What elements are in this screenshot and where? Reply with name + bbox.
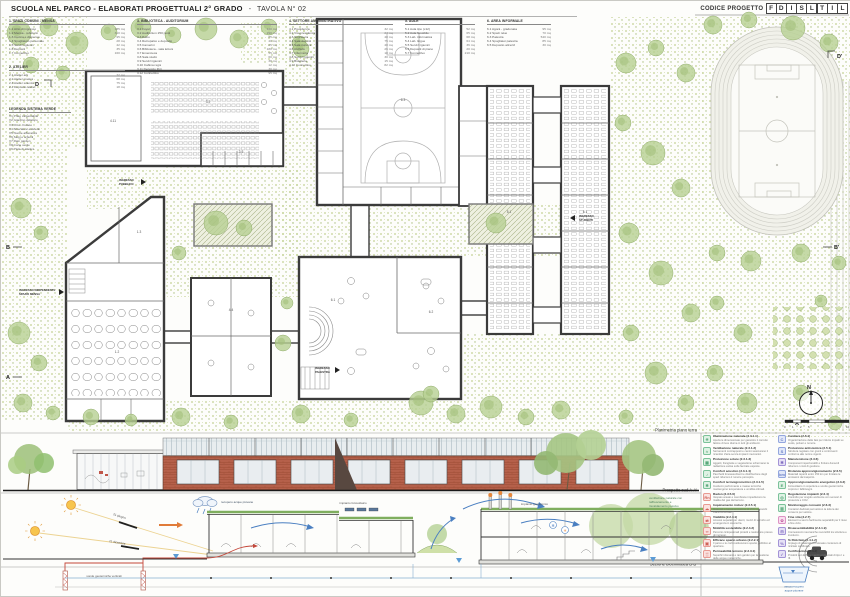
tree-crown [199,22,209,32]
legend-entry-desc: Materiali a bassa emissione di VOC e ric… [713,508,773,514]
legend-entry-icon: ☁ [703,504,711,512]
legend-entry: ⊟ Disassemblabilità (2.4.1.9)Connessioni… [778,527,848,537]
tree-crown [168,30,175,37]
legend-entry-icon: C [778,435,786,443]
legend-entry: ✿ Fine vita (2.2.7)Elementi a secco faci… [778,516,848,526]
legend-entry-icon: ▒ [703,550,711,558]
tree-crown [26,60,33,67]
title-block: SCUOLA NEL PARCO - ELABORATI PROGETTUALI… [11,4,577,13]
tree-crown [296,44,303,51]
legend-entry: ▥ Monitoraggio consumi (2.6.3)Contatori … [778,504,848,514]
tree-crown [795,247,803,255]
hvac-icons: ❄ ☀ [550,522,569,534]
plan-band-label: Planimetria piano terra [655,428,698,433]
tree-crown [43,21,51,29]
legend-entry-desc: Aggetti, frangisole e vegetazione scherm… [713,462,773,468]
tree-crown [649,366,659,376]
legend-entry: ❄ Comfort termoigrometrico (2.3.1.5)Invo… [703,481,773,491]
project-code-block: CODICE PROGETTO F D I S L T I L [700,3,848,14]
sheet-title: SCUOLA NEL PARCO - ELABORATI PROGETTUALI… [11,4,243,13]
legend-entry-desc: Organizzazione delle fasi per ridurre im… [788,439,848,445]
svg-text:D': D' [837,54,843,60]
svg-text:SPAZIO MENSA: SPAZIO MENSA [19,292,40,296]
south-elevation [3,430,699,491]
room-number: 6.1 [331,298,336,302]
drawing-sheet: 4.113.26.31.21.35.15.16.16.23.94.4 INGRE… [0,0,850,597]
tree-crown [70,36,80,46]
tree-crown [712,298,718,304]
legend-entry-icon: ✿ [778,516,786,524]
legend-entry-icon: ◎ [778,493,786,501]
tree-crown [745,255,754,264]
tree-crown [618,118,625,125]
legend-entry-desc: Pacchetti fonoassorbenti e distribuzione… [713,473,773,479]
legend-entry: km Distanza approvvigionamento (2.6.5)Ma… [778,470,848,480]
tree-crown [295,408,303,416]
sun-small-icon: ☀ [563,528,567,533]
svg-text:riscaldamento passivo: riscaldamento passivo [649,504,679,508]
sheet-number: TAVOLA N° 02 [257,6,306,13]
tree-crown [15,202,24,211]
legend-entry-desc: Aperture dimensionate per garantire il c… [713,439,773,445]
tree-crown [135,22,144,31]
tree-crown [785,20,796,31]
tree-crown [707,19,715,27]
tree-crown [226,417,232,423]
legend-entry-desc: Accessi separati per utenti, mezzi di se… [713,519,773,525]
legend-entry-desc: Il parco e le corti restituiscono spazio… [713,542,773,548]
tree-crown [623,227,632,236]
room-number: 6.2 [429,310,434,314]
tree-crown [712,248,719,255]
legend-entry-desc: Controllo per singolo ambiente con senso… [788,496,848,502]
tree-crown [17,397,25,405]
sun-summer-icon [67,501,76,510]
project-code-label: CODICE PROGETTO [700,6,763,12]
room-number: 6.3 [401,98,406,102]
tree-crown [36,228,42,234]
tree-crown [681,398,688,405]
underground-systems: sonde geotermiche verticali vasca recupe… [55,564,809,593]
tree-crown [834,258,840,264]
legend-entry: ✓ Certificazioni (2.4.2)Prodotti con EPD… [778,550,848,560]
running-track [711,27,843,235]
legend-entry: E Approvvigionamento energetico (2.3.2)F… [778,481,848,491]
legend-entry-icon: ▦ [703,458,711,466]
legend-entry-desc: Connessioni meccaniche reversibili tra s… [788,531,848,537]
project-code-letter: L [837,3,848,14]
tree-crown [653,265,664,276]
legend-entry-icon: ▥ [778,504,786,512]
legend-entry: ☀ Illuminazione naturale (2.3.1.1)Apertu… [703,435,773,445]
legend-entry-icon: ✱ [778,458,786,466]
svg-text:D: D [35,82,39,88]
tree-crown [675,182,683,190]
legend-entry-icon: ⊟ [778,527,786,535]
pv-panel [369,508,378,511]
legend-entry: ◎ Regolazione impianti (2.3.4)Controllo … [778,493,848,503]
tree-crown [127,416,132,421]
legend-entry-icon: ✓ [778,550,786,558]
legend-entry-icon: ☀ [703,435,711,443]
svg-text:A: A [6,375,10,381]
header-rules [9,15,849,17]
tree-crown [651,43,658,50]
rain-label: recupero acque piovane [221,500,254,504]
admin-block [459,86,487,206]
tree-crown [737,327,745,335]
legend-entry: ∞ Mobilità sostenibile (2.2.4.2)Percorsi… [703,527,773,537]
legend-entry-desc: Prodotti con EPD e marchi ambientali di … [788,554,848,560]
central-commons [299,257,461,399]
legend-entry-icon: E [778,481,786,489]
sustainability-column-left: ☀ Illuminazione naturale (2.3.1.1)Apertu… [703,435,773,594]
tree-crown [413,395,424,406]
tree-crown [58,68,64,74]
sun-path-diagram: 21 giugno 21 dicembre [25,495,213,555]
room-number: 1.2 [115,350,120,354]
mensa [66,197,164,421]
tree-crown [817,297,822,302]
tree-crown [239,223,246,230]
tree-crown [626,328,633,335]
room-number: 4.4 [229,308,234,312]
tree-crown [555,404,563,412]
tree-crown [264,22,271,29]
tree-crown [346,415,352,421]
legend-entry: ▦ Protezione solare (2.3.1.3)Aggetti, fr… [703,458,773,468]
tree-crown [490,217,499,226]
tree-crown [104,27,111,34]
legend-entry-desc: Percorsi ciclopedonali protetti e rastre… [713,531,773,537]
tree-crown [11,25,22,36]
tree-crown [48,408,54,414]
legend-entry: C Cantiere (2.6.1)Organizzazione delle f… [778,435,848,445]
legend-entry: ☁ Inquinamento indoor (2.3.5.1)Materiali… [703,504,773,514]
legend-entry-desc: Elementi a secco facilmente separabili p… [788,519,848,525]
legend-entry: % % Riciclato (2.4.1.2)Impiego di materi… [778,539,848,549]
tree-crown [450,408,458,416]
tree-crown [34,358,41,365]
auditorium-seats [151,80,259,114]
legend-entry: ≈ Ventilazione naturale (2.3.1.2)Serrame… [703,447,773,457]
section-low-volume [207,508,415,557]
probes-label: sonde geotermiche verticali [86,574,122,578]
tree-crown [175,411,183,419]
glass-pavilion [73,450,173,490]
legend-entry: ♪ Comfort acustico (2.3.1.4)Pacchetti fo… [703,470,773,480]
legend-entry-desc: Involucro performante e masse termiche m… [713,485,773,491]
tree-crown [823,37,831,45]
room-number: 3.9 [239,150,244,154]
title-separator: - [249,6,251,13]
sustainability-column-right: C Cantiere (2.6.1)Organizzazione delle f… [778,435,848,594]
room-number: 1.3 [137,230,142,234]
room-number: 5.1 [507,210,512,214]
pv-label: impianto fotovoltaico [339,501,367,505]
legend-entry-icon: km [778,470,786,478]
tree-crown [521,412,528,419]
svg-text:N: N [807,385,811,391]
legend-entry-icon: S [778,447,786,455]
legend-entry-desc: Superfici drenanti e rain garden per la … [713,554,773,560]
legend-entry-icon: ▣ [703,539,711,547]
svg-text:21 giugno: 21 giugno [113,512,127,520]
tree-crown [645,145,656,156]
sun-winter-icon [31,527,40,536]
tree-crown [278,338,285,345]
tree-crown [710,368,717,375]
svg-text:STUDENTI: STUDENTI [579,218,593,222]
legend-entry-icon: ∞ [703,527,711,535]
legend-entry: ⇄ Viabilità (2.2.4.1)Accessi separati pe… [703,516,773,526]
elevation-tree-left [8,444,54,490]
svg-text:10: 10 [846,425,850,429]
svg-text:B: B [6,245,10,251]
tree-crown [12,326,22,336]
legend-entry-desc: Componenti ispezionabili e finiture dure… [788,462,848,468]
legend-entry-icon: ≈ [703,447,711,455]
project-code-boxes: F D I S L T I L [766,3,848,14]
tree-crown [744,15,751,22]
stairs [611,551,635,560]
vent-label: ventilazione naturale con raffrescamento… [649,496,683,508]
airflow-arrows [251,499,648,552]
legend-entry-desc: Serramenti contrapposti e camini assicur… [713,450,773,456]
legend-entry-desc: Struttura regolare con giunti e controve… [788,450,848,456]
tree-crown [86,412,93,419]
svg-text:PALESTRA: PALESTRA [315,370,330,374]
svg-text:B': B' [834,245,840,251]
pv-panel [357,508,366,511]
geo-label: impianto geotermico [521,502,548,506]
sustainability-legend: ☀ Illuminazione naturale (2.3.1.1)Apertu… [703,435,849,594]
tree-crown [283,299,288,304]
snowflake-icon: ❄ [551,523,554,528]
legend-entry-desc: Vespaio areato e membrane impediscono la… [713,496,773,502]
legend-entry-desc: Materiali reperiti entro 150 km per limi… [788,473,848,479]
pv-panel [345,508,354,511]
legend-entry-icon: ❄ [703,481,711,489]
tree-crown [680,67,688,75]
legend-entry: Rn Radon (2.3.5.6)Vespaio areato e membr… [703,493,773,503]
legend-entry: ✱ Manutenzione (2.3.6)Componenti ispezio… [778,458,848,468]
legend-entry-desc: Fotovoltaico in copertura e sonde geoter… [788,485,848,491]
gym [317,19,461,205]
legend-entry: ▒ Permeabilità terreno (2.2.3.1)Superfic… [703,550,773,560]
legend-entry-icon: ♪ [703,470,711,478]
tree-crown [621,412,627,418]
legend-entry-desc: Contatori dedicati permettono la lettura… [788,508,848,514]
legend-entry: ▣ Efficace spazio urbano (2.2.2.1)Il par… [703,539,773,549]
legend-entry-icon: Rn [703,493,711,501]
svg-text:PUBBLICO: PUBBLICO [119,182,134,186]
legend-entry: S Protezione antisismica (2.5.1)Struttur… [778,447,848,457]
tree-crown [796,388,803,395]
orchard [773,307,849,369]
group-rooms-block [191,278,271,396]
legend-entry-icon: ⇄ [703,516,711,524]
svg-text:21 dicembre: 21 dicembre [109,539,126,546]
tree-crown [174,248,180,254]
tree-crown [741,397,750,406]
tree-crown [685,307,693,315]
legend-entry-icon: % [778,539,786,547]
tree-crown [484,400,494,410]
room-number: 3.2 [206,100,211,104]
tree-crown [426,389,433,396]
tree-crown [233,33,241,41]
tree-crown [620,57,629,66]
room-number: 4.11 [110,119,116,123]
legend-entry-desc: Impiego di materiali con elevato contenu… [788,542,848,548]
tree-crown [208,215,219,226]
